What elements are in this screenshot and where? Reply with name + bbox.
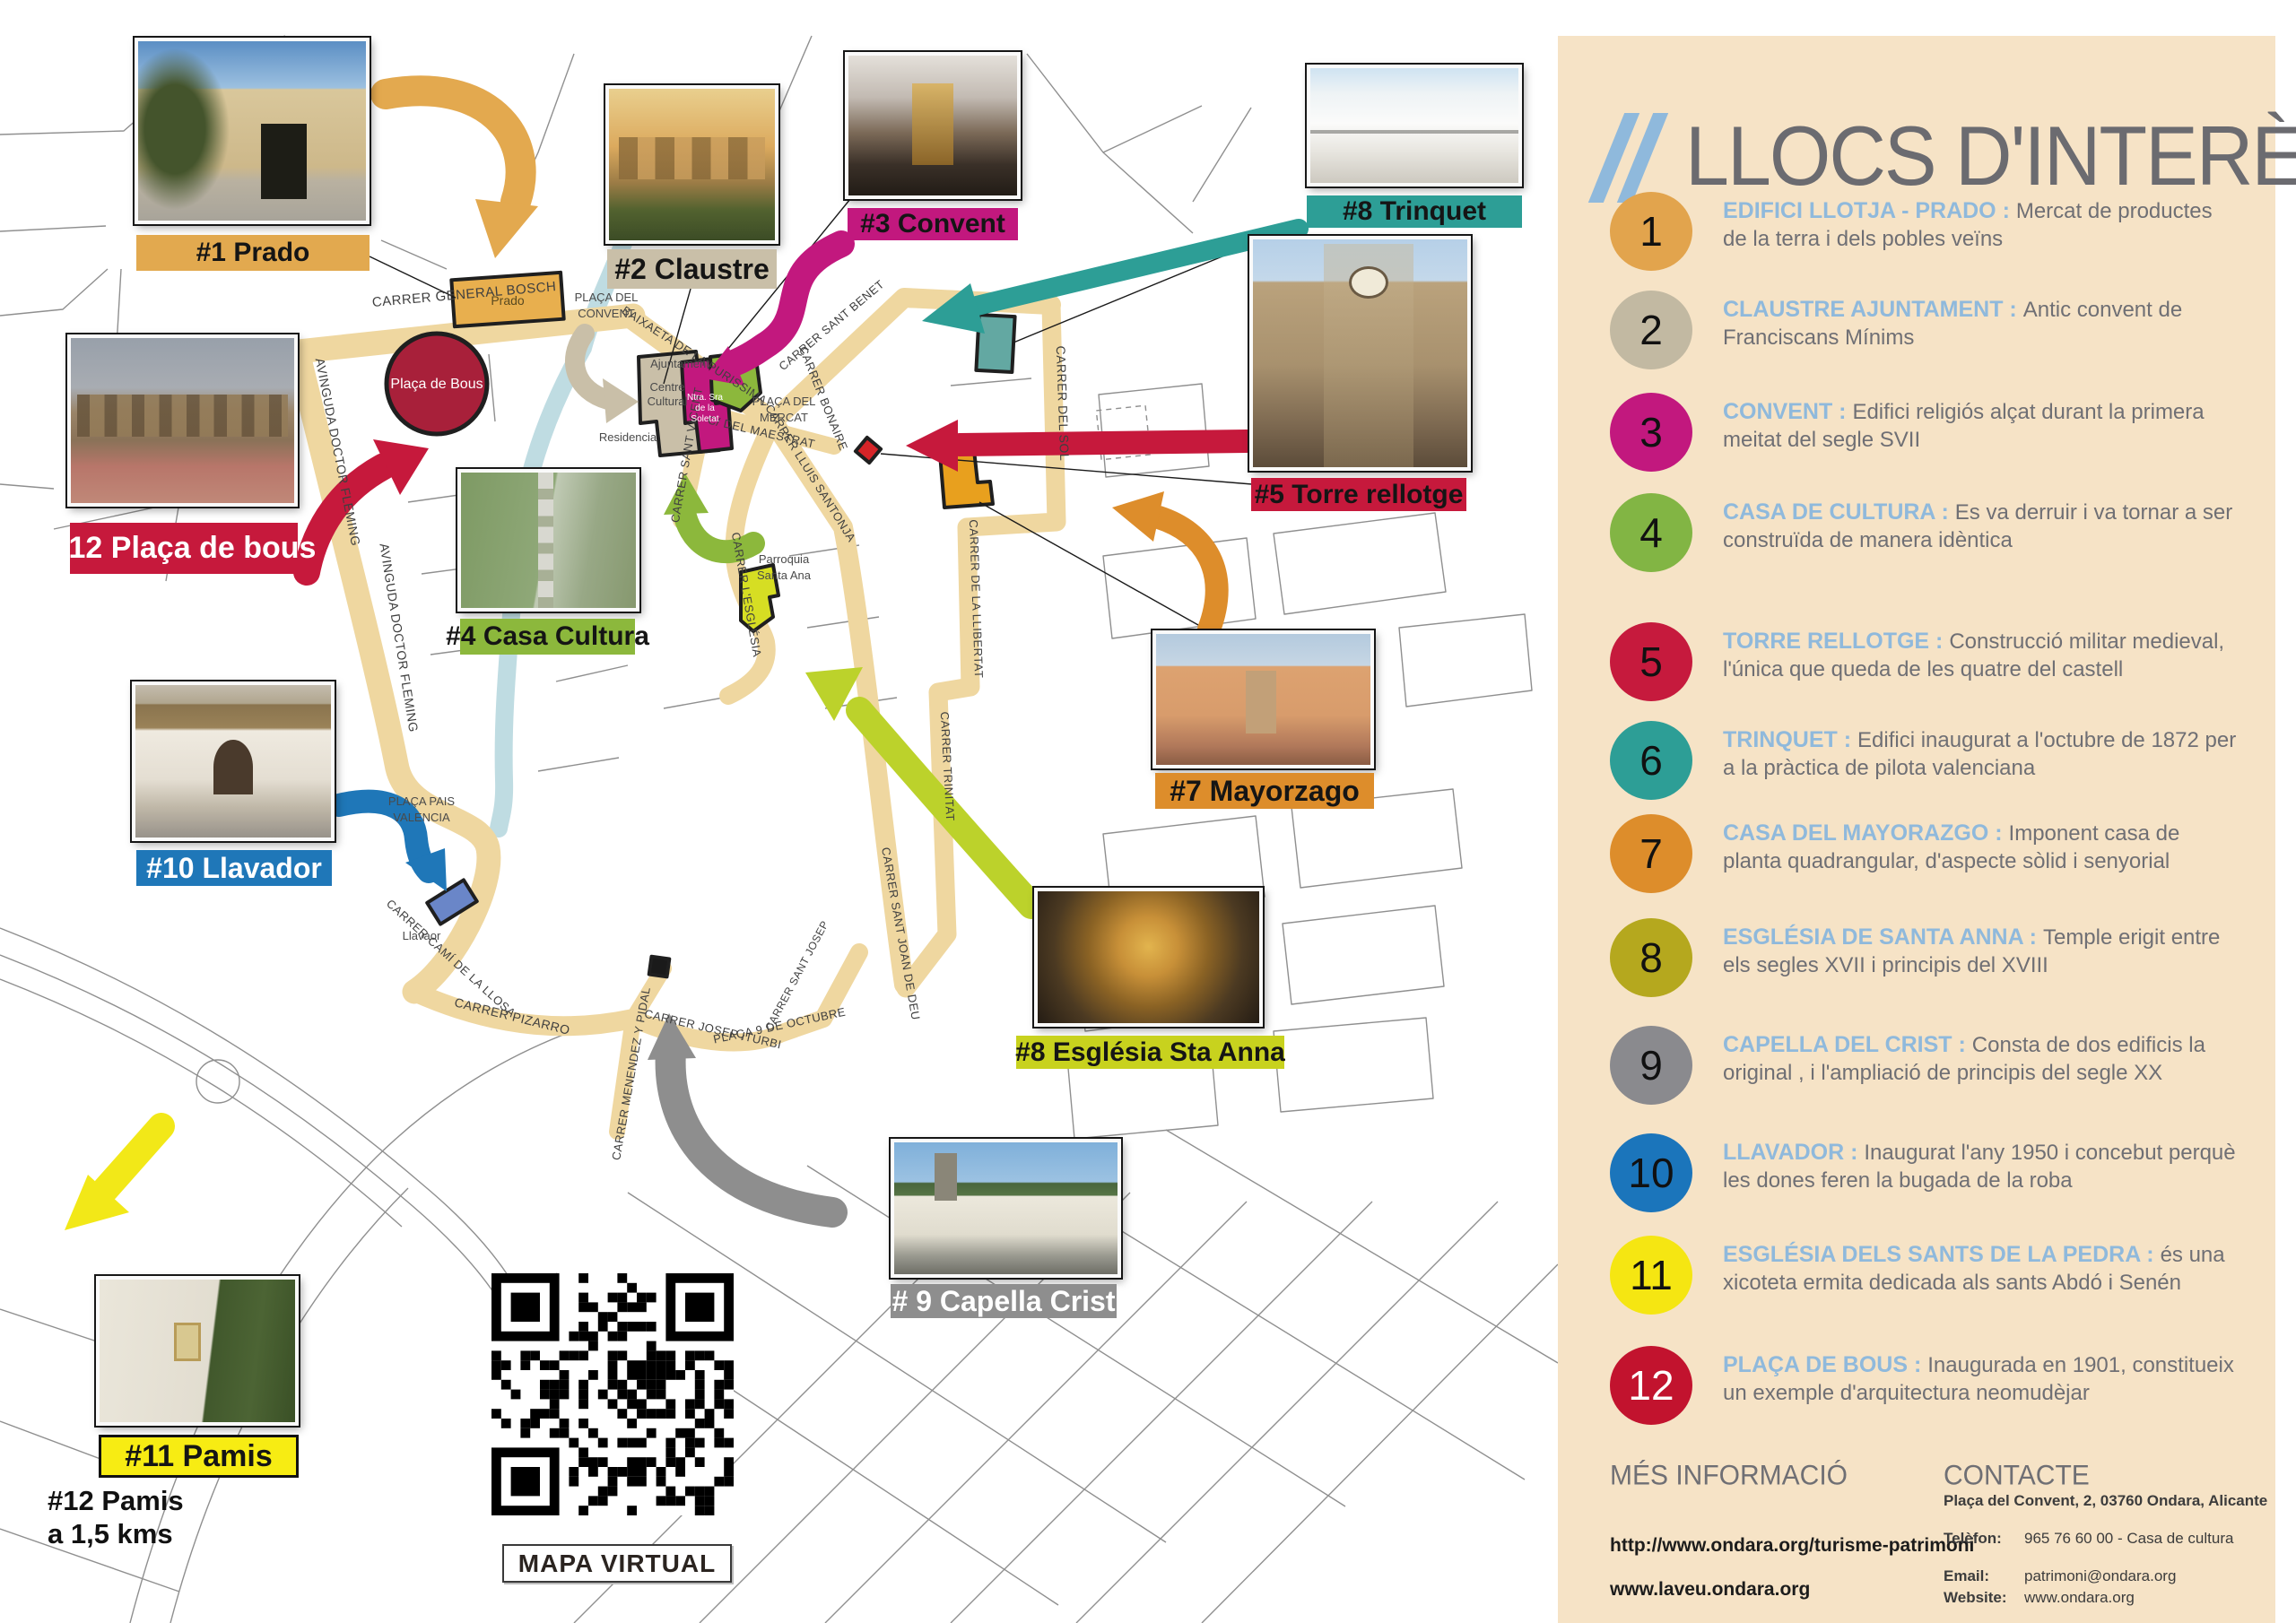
poi-number-badge: 2 — [1610, 291, 1692, 369]
contact-phone-row: Telèfon: 965 76 60 00 - Casa de cultura — [1944, 1530, 2233, 1548]
capella-building — [649, 957, 670, 977]
place-label: Soletat — [691, 414, 718, 424]
page-title: LLOCS D'INTERÈS — [1685, 108, 2296, 204]
poi-title: CASA DEL MAYORAZGO : — [1723, 820, 2009, 846]
pamis-note-line2: a 1,5 kms — [48, 1517, 184, 1550]
label-placa-de-bous: #12 Plaça de bous — [70, 523, 298, 574]
place-label: Llavaor — [403, 929, 441, 942]
place-label: Santa Ana — [757, 568, 812, 582]
place-label: CONVENT — [578, 307, 635, 320]
quoins-shape — [538, 473, 554, 608]
arena-arches-shape — [77, 395, 287, 438]
prado-arrow — [386, 91, 521, 202]
photo-trinquet — [1307, 65, 1522, 187]
phone-label: Telèfon: — [1944, 1530, 2008, 1548]
place-label: Centre — [649, 380, 684, 394]
place-label: Prado — [491, 293, 525, 308]
trinquet-building — [976, 315, 1014, 372]
label-torre-rellotge: #5 Torre rellotge — [1251, 478, 1466, 511]
poi-text: EDIFICI LLOTJA - PRADO : Mercat de produ… — [1723, 197, 2241, 253]
poi-text: TORRE RELLOTGE : Construcció militar med… — [1723, 628, 2241, 683]
poster: CARRER GENERAL BOSCHAVINGUDA DOCTOR FLEM… — [0, 0, 2296, 1623]
torre-rellotge-arrow-head — [906, 420, 958, 472]
poi-text: CASA DE CULTURA : Es va derruir i va tor… — [1723, 499, 2241, 554]
place-label: Ntra. Sra — [687, 393, 723, 403]
photo-llavador — [132, 681, 335, 841]
tree-shape — [135, 48, 230, 210]
contact-heading: CONTACTE — [1944, 1460, 2090, 1492]
poi-number-badge: 4 — [1610, 493, 1692, 572]
place-label: Residencia — [599, 430, 657, 444]
poi-title: TORRE RELLOTGE : — [1723, 629, 1949, 654]
label-trinquet: #8 Trinquet — [1307, 195, 1522, 228]
prado-arrow-head — [475, 199, 538, 258]
poi-number-badge: 8 — [1610, 918, 1692, 997]
poi-text: CLAUSTRE AJUNTAMENT : Antic convent de F… — [1723, 296, 2241, 352]
capella-arrow — [671, 1051, 832, 1212]
label-pamis: #11 Pamis — [99, 1435, 299, 1478]
bell-shape — [935, 1153, 957, 1201]
label-esglesia-sta-anna: #8 Església Sta Anna — [1016, 1036, 1284, 1069]
poi-title: TRINQUET : — [1723, 727, 1857, 752]
photo-convent — [845, 52, 1021, 199]
more-info-heading: MÉS INFORMACIÓ — [1610, 1460, 1848, 1492]
photo-torre-rellotge — [1249, 236, 1471, 471]
contact-address: Plaça del Convent, 2, 03760 Ondara, Alic… — [1944, 1492, 2267, 1510]
phone-value: 965 76 60 00 - Casa de cultura — [2024, 1530, 2233, 1548]
poi-title: PLAÇA DE BOUS : — [1723, 1352, 1927, 1377]
label-convent: #3 Convent — [848, 208, 1018, 240]
label-claustre: #2 Claustre — [607, 249, 777, 289]
qr-modules — [491, 1273, 734, 1515]
label-capella-crist: # 9 Capella Crist — [891, 1284, 1117, 1318]
pamis-note-line1: #12 Pamis — [48, 1484, 184, 1517]
place-label: Ajuntament — [650, 357, 709, 370]
poi-title: ESGLÉSIA DE SANTA ANNA : — [1723, 924, 2043, 950]
place-label: Parroquia — [759, 552, 810, 566]
label-prado: #1 Prado — [136, 235, 370, 271]
poi-number-badge: 1 — [1610, 192, 1692, 271]
net-shape — [1310, 130, 1518, 134]
poi-text: CAPELLA DEL CRIST : Consta de dos edific… — [1723, 1031, 2241, 1087]
photo-casa-cultura — [457, 469, 639, 612]
shrine-shape — [174, 1323, 202, 1361]
place-label: de la — [695, 404, 715, 413]
email-value[interactable]: patrimoni@ondara.org — [2024, 1567, 2176, 1585]
photo-esglesia-sta-anna — [1034, 888, 1263, 1027]
poi-text: LLAVADOR : Inaugurat l'any 1950 i conceb… — [1723, 1139, 2241, 1194]
poi-title: CAPELLA DEL CRIST : — [1723, 1032, 1972, 1057]
arches-shape — [619, 137, 765, 179]
pamis-distance-note: #12 Pamis a 1,5 kms — [48, 1484, 184, 1550]
place-label: MERCAT — [760, 411, 808, 424]
contact-website-row: Website: www.ondara.org — [1944, 1589, 2135, 1607]
place-label: Plaça de Bous — [390, 377, 483, 392]
website-value[interactable]: www.ondara.org — [2024, 1589, 2135, 1607]
pamis-arrow — [106, 1126, 161, 1189]
place-label: PLAÇA DEL — [752, 395, 816, 408]
poi-number-badge: 9 — [1610, 1026, 1692, 1105]
website-label: Website: — [1944, 1589, 2008, 1607]
photo-capella-crist — [891, 1139, 1121, 1278]
door-shape — [261, 124, 307, 199]
poi-number-badge: 6 — [1610, 721, 1692, 800]
more-info-link-1[interactable]: http://www.ondara.org/turisme-patrimoni — [1610, 1535, 1974, 1557]
photo-claustre — [605, 85, 778, 244]
poi-number-badge: 11 — [1610, 1236, 1692, 1315]
poi-title: CASA DE CULTURA : — [1723, 499, 1955, 525]
poi-text: CONVENT : Edifici religiós alçat durant … — [1723, 398, 2241, 454]
label-llavador: #10 Llavador — [136, 850, 332, 886]
poi-number-badge: 12 — [1610, 1346, 1692, 1425]
mayorazgo-arrow — [1159, 517, 1217, 629]
label-casa-cultura: #4 Casa Cultura — [460, 619, 635, 655]
poi-title: ESGLÉSIA DELS SANTS DE LA PEDRA : — [1723, 1242, 2161, 1267]
poi-number-badge: 5 — [1610, 622, 1692, 701]
poi-text: ESGLÉSIA DE SANTA ANNA : Temple erigit e… — [1723, 924, 2241, 979]
corner-shape — [1246, 671, 1275, 733]
photo-prado — [135, 38, 370, 224]
poi-title: EDIFICI LLOTJA - PRADO : — [1723, 198, 2016, 223]
place-label: Cultural — [648, 395, 688, 408]
poi-text: ESGLÉSIA DELS SANTS DE LA PEDRA : és una… — [1723, 1241, 2241, 1297]
more-info-link-2[interactable]: www.laveu.ondara.org — [1610, 1579, 1810, 1601]
poi-number-badge: 7 — [1610, 814, 1692, 893]
mapa-virtual-button[interactable]: MAPA VIRTUAL — [502, 1544, 732, 1583]
poi-title: CLAUSTRE AJUNTAMENT : — [1723, 297, 2023, 322]
qr-code — [491, 1273, 734, 1515]
photo-pamis — [96, 1276, 299, 1426]
town-map: CARRER GENERAL BOSCHAVINGUDA DOCTOR FLEM… — [0, 0, 1558, 1623]
poi-text: PLAÇA DE BOUS : Inaugurada en 1901, cons… — [1723, 1351, 2241, 1407]
label-mayorzago: #7 Mayorzago — [1155, 773, 1374, 809]
place-label: PLAÇA DEL — [575, 291, 639, 304]
claustre-arrow-head — [603, 378, 639, 423]
poi-text: TRINQUET : Edifici inaugurat a l'octubre… — [1723, 726, 2241, 782]
torre-rellotge-arrow — [960, 441, 1247, 445]
poi-text: CASA DEL MAYORAZGO : Imponent casa de pl… — [1723, 820, 2241, 875]
photo-placa-de-bous — [67, 334, 298, 507]
poi-title: LLAVADOR : — [1723, 1140, 1864, 1165]
poi-title: CONVENT : — [1723, 399, 1852, 424]
mayorazgo-arrow-head — [1112, 491, 1164, 542]
arch-door-shape — [213, 740, 253, 794]
place-label: PLAÇA PAIS — [388, 794, 456, 808]
contact-email-row: Email: patrimoni@ondara.org — [1944, 1567, 2176, 1585]
sidebar: LLOCS D'INTERÈS 1EDIFICI LLOTJA - PRADO … — [1558, 36, 2275, 1623]
poi-number-badge: 10 — [1610, 1133, 1692, 1212]
email-label: Email: — [1944, 1567, 2008, 1585]
photo-mayorzago — [1152, 630, 1374, 768]
torre-rellotge-building — [856, 438, 881, 463]
place-label: VALENCIA — [393, 811, 450, 824]
poi-number-badge: 3 — [1610, 393, 1692, 472]
altar-shape — [912, 83, 952, 164]
